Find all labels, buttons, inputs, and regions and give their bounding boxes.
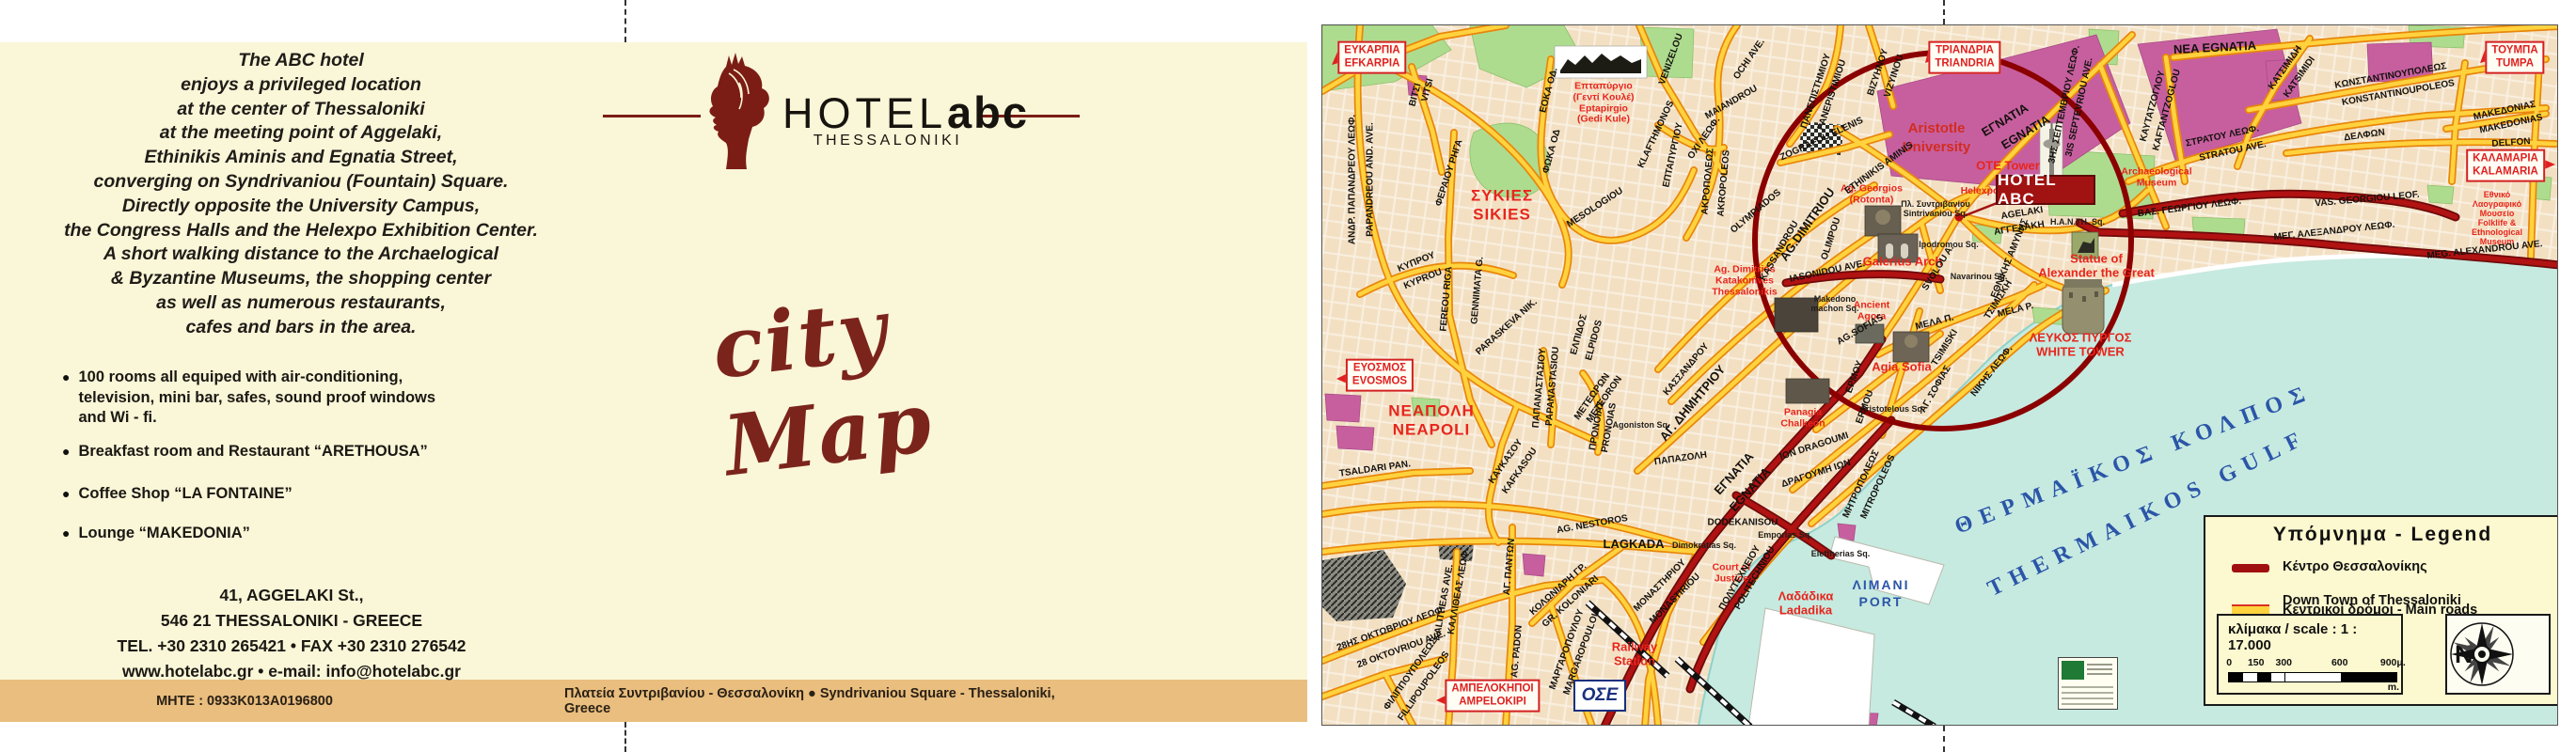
- hotel-description-line: at the meeting point of Aggelaki,: [19, 121, 583, 146]
- map-label: ΣΥΚΙΕΣ SIKIES: [1471, 187, 1533, 226]
- logo-rule-left: [603, 115, 701, 117]
- amenity-item: ●Coffee Shop “LA FONTAINE”: [62, 484, 292, 505]
- hotel-description-line: The ABC hotel: [19, 49, 583, 73]
- map-label: ΝΕΑΠΟΛΗ NEAPOLI: [1388, 402, 1475, 441]
- scale-tick: 0: [2226, 657, 2232, 668]
- publisher-text-line: [2062, 692, 2113, 694]
- scale-tick: 900μ.: [2380, 657, 2406, 668]
- publisher-text-line: [2087, 673, 2112, 675]
- bullet-icon: ●: [62, 484, 70, 505]
- legend-title: Υπόμνημα - Legend: [2205, 524, 2558, 546]
- map-label: ΕΥΟΣΜΟΣ EVOSMOS: [1346, 359, 1414, 392]
- scale-title: κλίμακα / scale : 1 : 17.000: [2228, 621, 2401, 653]
- map-label: ΑΜΠΕΛΟΚΗΠΟΙ AMPELOKIPI: [1445, 680, 1540, 713]
- square-address-footer: Πλατεία Συντριβανίου - Θεσσαλονίκη ● Syn…: [564, 680, 1091, 722]
- amenity-item: ●Breakfast room and Restaurant “ARETHOUS…: [62, 442, 428, 462]
- ose-railway-logo: OΣE: [1573, 680, 1626, 712]
- map-label: Galerius Arch: [1863, 254, 1943, 268]
- map-label: Railway Station: [1612, 640, 1657, 669]
- map-label: DODEKANISOU: [1707, 518, 1778, 528]
- hotel-description-line: Directly opposite the University Campus,: [19, 195, 583, 219]
- publisher-text-line: [2087, 664, 2112, 666]
- map-label: Statue of Alexander the Great: [2038, 252, 2155, 281]
- bullet-icon: ●: [62, 368, 70, 429]
- scale-box: κλίμακα / scale : 1 : 17.000 01503006009…: [2217, 614, 2403, 695]
- amenity-item: ●Lounge “MAKEDONIA”: [62, 524, 250, 544]
- publisher-text-line: [2062, 686, 2113, 688]
- hotel-description-line: Ethinikis Aminis and Egnatia Street,: [19, 146, 583, 170]
- city-map: ΣΥΚΙΕΣ SIKIESΝΕΑΠΟΛΗ NEAPOLIΕΥΚΑΡΠΙΑ EFK…: [1321, 24, 2558, 726]
- amenity-text: Lounge “MAKEDONIA”: [78, 524, 249, 544]
- map-label: Εθνικό Λαογραφικό Μουσείο: [2473, 190, 2521, 218]
- address-line: TEL. +30 2310 265421 • FAX +30 2310 2765…: [19, 634, 564, 659]
- hotel-description-line: as well as numerous restaurants,: [19, 291, 583, 316]
- map-label: Λαδάδικα Ladadika: [1778, 589, 1834, 619]
- address-line: 546 21 THESSALONIKI - GREECE: [19, 608, 564, 634]
- logo-city-text: THESSALONIKI: [786, 133, 989, 149]
- map-label: Agia Sofia: [1872, 359, 1932, 373]
- agia-sofia-photo: [1893, 332, 1929, 362]
- map-label: ΛΕΥΚΟΣ ΠΥΡΓΟΣ WHITE TOWER: [2030, 331, 2132, 360]
- map-label: Panagia Chalkeon: [1780, 407, 1825, 430]
- map-label: Makedono machon Sq.: [1810, 295, 1858, 314]
- publisher-logo: [2062, 661, 2084, 680]
- map-label: Archaeological Museum: [2121, 166, 2191, 189]
- hotel-description-line: cafes and bars in the area.: [19, 316, 583, 340]
- address-line: 41, AGGELAKI St.,: [19, 583, 564, 608]
- fold-mark: [624, 0, 626, 42]
- scale-tick: 600: [2331, 657, 2348, 668]
- downtown-road-swatch: [2232, 564, 2269, 572]
- publisher-text-line: [2062, 697, 2113, 699]
- hotel-abc-map-box: HOTEL ABC: [1996, 175, 2095, 205]
- map-label: ΕΥΚΑΡΠΙΑ EFKARPIA: [1337, 41, 1406, 74]
- hotel-description-line: & Byzantine Museums, the shopping center: [19, 267, 583, 291]
- map-label: Επταπύργιο (Γεντί Κουλέ) Eptapirgio (Ged…: [1572, 82, 1634, 126]
- map-label: Πλ. Συντριβανίου Sintrivaniou Sq.: [1901, 200, 1970, 219]
- publisher-text-line: [2062, 703, 2113, 705]
- hotel-description-line: A short walking distance to the Archaelo…: [19, 243, 583, 267]
- brochure-page: The ABC hotelenjoys a privileged locatio…: [0, 0, 2576, 752]
- hotel-abc-head-logo-icon: [698, 53, 775, 169]
- eptapirgio-photo: [1555, 46, 1647, 78]
- map-label: LAGKADA: [1604, 538, 1665, 551]
- map-label: Aristotle University: [1903, 119, 1971, 158]
- map-legend: Υπόμνημα - Legend Κέντρο Θεσσαλονίκης Do…: [2204, 515, 2558, 706]
- hotel-description-line: the Congress Halls and the Helexpo Exhib…: [19, 219, 583, 243]
- compass-box: N: [2445, 614, 2551, 695]
- logo-abc-text: abc: [947, 87, 1029, 137]
- map-label: Dimokratias Sq.: [1672, 541, 1736, 551]
- panagia-chalkeon-photo: [1786, 379, 1829, 403]
- amenity-text: 100 rooms all equiped with air-condition…: [78, 368, 435, 429]
- hotel-address: 41, AGGELAKI St.,546 21 THESSALONIKI - G…: [19, 583, 564, 684]
- map-label: ΤΡΙΑΝΔΡΙΑ TRIANDRIA: [1928, 41, 2000, 74]
- map-label: H.A.N.TH. Sq.: [2050, 218, 2105, 227]
- logo-wordmark: HOTELabc: [782, 86, 1083, 138]
- hotel-description-line: at the center of Thessaloniki: [19, 98, 583, 122]
- bullet-icon: ●: [62, 442, 70, 462]
- publisher-text-line: [2087, 668, 2112, 670]
- hotel-description-line: enjoys a privileged location: [19, 73, 583, 98]
- hotel-description: The ABC hotelenjoys a privileged locatio…: [19, 49, 583, 340]
- fold-mark: [624, 722, 626, 752]
- fold-mark: [1943, 0, 1945, 24]
- scale-tick: 150: [2248, 657, 2265, 668]
- map-label: ΑΝΔΡ. ΠΑΠΑΝΔΡΕΟΥ ΛΕΩΦ.: [1348, 115, 1358, 244]
- amenity-text: Coffee Shop “LA FONTAINE”: [78, 484, 292, 505]
- map-label: ΚΑΛΑΜΑΡΙΑ KALAMARIA: [2466, 149, 2545, 182]
- amenity-text: Breakfast room and Restaurant “ARETHOUSA…: [78, 442, 427, 462]
- compass-rose-icon: [2447, 619, 2517, 689]
- amenity-item: ●100 rooms all equiped with air-conditio…: [62, 368, 435, 429]
- map-label: Eleftherias Sq.: [1811, 550, 1871, 559]
- publisher-credit-box: [2058, 657, 2118, 710]
- scale-ticks: 0150300600900μ.: [2228, 657, 2395, 668]
- map-label: Emporias Sq.: [1758, 531, 1812, 540]
- scale-tick: 300: [2276, 657, 2293, 668]
- scale-bar: [2228, 672, 2397, 682]
- legend-downtown-gr: Κέντρο Θεσσαλονίκης: [2283, 559, 2427, 574]
- fold-mark: [1943, 726, 1945, 752]
- map-label: PAPANDREOU AND. AVE.: [1366, 122, 1376, 237]
- scale-unit: m.: [2388, 681, 2399, 693]
- bullet-icon: ●: [62, 524, 70, 544]
- registry-number: ΜΗΤΕ : 0933K013A0196800: [113, 680, 376, 722]
- white-tower-photo: [2062, 279, 2104, 334]
- logo-hotel-text: HOTEL: [782, 89, 947, 137]
- hotel-description-line: converging on Syndrivaniou (Fountain) Sq…: [19, 170, 583, 195]
- map-label: ΛΙΜΑΝΙ PORT: [1853, 576, 1910, 610]
- map-label: ΤΟΥΜΠΑ TUMPA: [2485, 41, 2544, 74]
- rotonda-photo: [1865, 206, 1901, 236]
- map-label: Helexpo: [1961, 186, 1999, 197]
